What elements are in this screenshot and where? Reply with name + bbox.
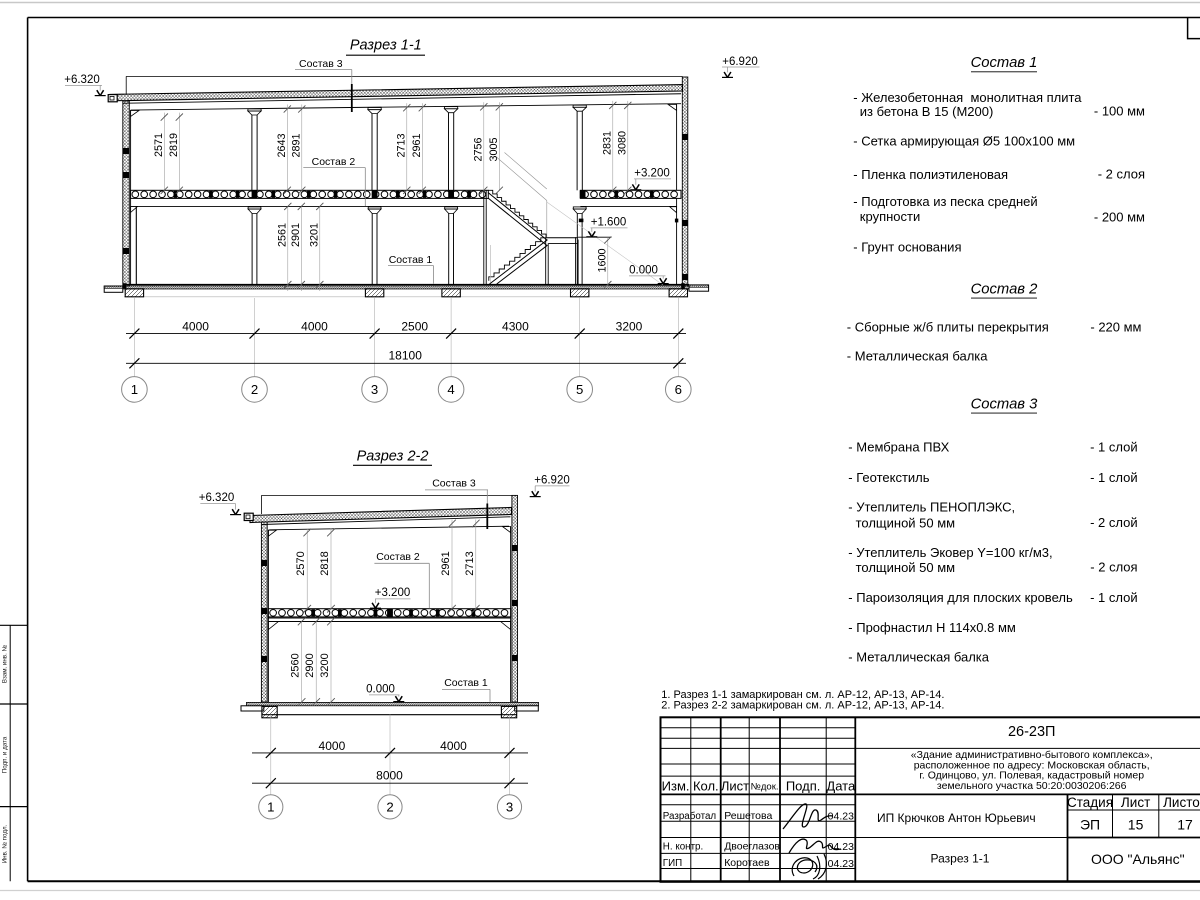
svg-text:Разработал: Разработал bbox=[663, 811, 717, 822]
svg-text:2500: 2500 bbox=[401, 319, 428, 333]
svg-text:04.23: 04.23 bbox=[828, 858, 854, 870]
svg-text:- Железобетонная монолитная п: - Железобетонная монолитная плита bbox=[853, 90, 1082, 105]
svg-text:17: 17 bbox=[1177, 816, 1193, 832]
svg-text:2891: 2891 bbox=[290, 133, 302, 157]
svg-text:2643: 2643 bbox=[276, 133, 288, 157]
svg-text:- Геотекстиль: - Геотекстиль bbox=[848, 470, 929, 485]
svg-text:3200: 3200 bbox=[319, 653, 331, 677]
svg-text:4000: 4000 bbox=[182, 319, 209, 333]
svg-text:26-23П: 26-23П bbox=[1008, 724, 1056, 740]
svg-text:толщиной 50 мм: толщиной 50 мм bbox=[856, 515, 956, 530]
svg-text:- Сборные ж/б плиты перекрытия: - Сборные ж/б плиты перекрытия bbox=[847, 320, 1049, 335]
svg-text:2900: 2900 bbox=[304, 653, 316, 677]
svg-text:1600: 1600 bbox=[596, 248, 608, 272]
svg-text:Решетова: Решетова bbox=[724, 810, 772, 822]
svg-text:Состав 3: Состав 3 bbox=[432, 477, 476, 489]
svg-text:3: 3 bbox=[371, 382, 378, 397]
svg-text:2756: 2756 bbox=[472, 137, 484, 161]
svg-text:3080: 3080 bbox=[616, 131, 628, 155]
svg-text:8000: 8000 bbox=[376, 768, 403, 782]
svg-text:ИП Крючков Антон Юрьевич: ИП Крючков Антон Юрьевич bbox=[877, 811, 1036, 825]
svg-text:- 2 слоя: - 2 слоя bbox=[1090, 560, 1137, 575]
svg-text:3200: 3200 bbox=[616, 319, 643, 333]
svg-text:- Грунт основания: - Грунт основания bbox=[853, 240, 961, 255]
svg-text:- Утеплитель Эковер Y=100 кг/м: - Утеплитель Эковер Y=100 кг/м3, bbox=[848, 545, 1052, 560]
svg-text:Н. контр.: Н. контр. bbox=[663, 841, 703, 852]
svg-text:2571: 2571 bbox=[153, 133, 165, 157]
svg-text:из бетона В 15 (М200): из бетона В 15 (М200) bbox=[860, 104, 994, 119]
svg-text:Состав 3: Состав 3 bbox=[971, 397, 1039, 413]
svg-text:+3.200: +3.200 bbox=[375, 587, 411, 599]
svg-text:ГИП: ГИП bbox=[663, 858, 682, 869]
svg-text:+6.920: +6.920 bbox=[722, 56, 758, 68]
svg-text:- Пароизоляция для плоских кро: - Пароизоляция для плоских кровель bbox=[848, 590, 1073, 605]
svg-text:2. Разрез 2-2 замаркирован см.: 2. Разрез 2-2 замаркирован см. л. АР-12,… bbox=[661, 699, 944, 711]
svg-text:4000: 4000 bbox=[319, 739, 346, 753]
svg-text:- Утеплитель ПЕНОПЛЭКС,: - Утеплитель ПЕНОПЛЭКС, bbox=[848, 500, 1015, 515]
svg-text:4000: 4000 bbox=[440, 739, 467, 753]
svg-text:Листов: Листов bbox=[1163, 795, 1200, 810]
svg-text:2901: 2901 bbox=[290, 223, 302, 247]
svg-text:Подп.: Подп. bbox=[786, 779, 821, 794]
svg-text:2561: 2561 bbox=[276, 223, 288, 247]
svg-text:- Профнастил Н 114х0.8 мм: - Профнастил Н 114х0.8 мм bbox=[848, 620, 1016, 635]
svg-text:4: 4 bbox=[447, 382, 454, 397]
svg-text:2831: 2831 bbox=[601, 131, 613, 155]
svg-text:- 1 слой: - 1 слой bbox=[1090, 470, 1138, 485]
svg-text:+3.200: +3.200 bbox=[634, 168, 670, 180]
svg-text:2818: 2818 bbox=[319, 551, 331, 575]
svg-text:2713: 2713 bbox=[464, 551, 476, 575]
svg-text:2961: 2961 bbox=[440, 551, 452, 575]
svg-text:Лист: Лист bbox=[721, 779, 749, 794]
svg-text:18100: 18100 bbox=[389, 349, 423, 363]
svg-text:- 2 слой: - 2 слой bbox=[1090, 515, 1138, 530]
svg-text:Состав 1: Состав 1 bbox=[444, 677, 488, 689]
svg-text:2: 2 bbox=[386, 800, 393, 815]
svg-text:Стадия: Стадия bbox=[1067, 795, 1113, 810]
svg-text:- Мембрана ПВХ: - Мембрана ПВХ bbox=[848, 440, 949, 455]
svg-text:- Металлическая балка: - Металлическая балка bbox=[847, 349, 988, 364]
svg-text:Кол.: Кол. bbox=[693, 779, 719, 794]
svg-text:3005: 3005 bbox=[488, 137, 500, 161]
svg-text:- Металлическая балка: - Металлическая балка bbox=[848, 650, 989, 665]
svg-text:Дата: Дата bbox=[826, 779, 856, 794]
svg-text:+1.600: +1.600 bbox=[591, 217, 627, 229]
svg-text:Инв. № подл.: Инв. № подл. bbox=[2, 824, 9, 863]
svg-text:0.000: 0.000 bbox=[629, 265, 658, 277]
svg-text:Разрез 2-2: Разрез 2-2 bbox=[357, 449, 429, 465]
svg-text:Состав 2: Состав 2 bbox=[971, 282, 1039, 298]
svg-text:- 100 мм: - 100 мм bbox=[1094, 104, 1145, 119]
svg-text:Разрез 1-1: Разрез 1-1 bbox=[931, 852, 990, 866]
svg-text:+6.920: +6.920 bbox=[534, 475, 570, 487]
svg-text:4000: 4000 bbox=[301, 319, 328, 333]
svg-text:1: 1 bbox=[131, 382, 138, 397]
svg-text:Состав 1: Состав 1 bbox=[971, 55, 1038, 71]
svg-text:Двоеглазов: Двоеглазов bbox=[724, 840, 780, 852]
svg-text:3201: 3201 bbox=[308, 223, 320, 247]
svg-text:Лист: Лист bbox=[1121, 795, 1150, 810]
svg-text:- 220 мм: - 220 мм bbox=[1090, 320, 1141, 335]
svg-text:2560: 2560 bbox=[290, 653, 302, 677]
svg-text:Изм.: Изм. bbox=[662, 779, 690, 794]
svg-text:3: 3 bbox=[506, 800, 513, 815]
svg-text:Разрез 1-1: Разрез 1-1 bbox=[350, 38, 422, 54]
svg-text:2961: 2961 bbox=[411, 133, 423, 157]
svg-text:Коротаев: Коротаев bbox=[724, 857, 770, 869]
svg-text:Состав 2: Состав 2 bbox=[312, 156, 356, 168]
svg-text:4300: 4300 bbox=[502, 319, 529, 333]
svg-text:- 2 слоя: - 2 слоя bbox=[1098, 167, 1145, 182]
svg-text:2570: 2570 bbox=[295, 551, 307, 575]
svg-text:Подп. и дата: Подп. и дата bbox=[2, 736, 9, 773]
svg-text:крупности: крупности bbox=[860, 209, 920, 224]
svg-text:- 200 мм: - 200 мм bbox=[1094, 210, 1145, 225]
svg-text:Состав 3: Состав 3 bbox=[299, 58, 343, 70]
svg-text:Состав 1: Состав 1 bbox=[389, 254, 433, 266]
svg-text:Взам. инв. №: Взам. инв. № bbox=[2, 644, 9, 683]
svg-text:15: 15 bbox=[1128, 816, 1144, 832]
svg-text:+6.320: +6.320 bbox=[199, 492, 235, 504]
svg-text:- Сетка армирующая Ø5 100х100: - Сетка армирующая Ø5 100х100 мм bbox=[853, 134, 1075, 149]
svg-text:земельного участка 50:20:00302: земельного участка 50:20:0030206:266 bbox=[937, 780, 1127, 792]
svg-text:ООО "Альянс": ООО "Альянс" bbox=[1091, 851, 1185, 867]
svg-text:толщиной 50 мм: толщиной 50 мм bbox=[856, 560, 956, 575]
svg-text:6: 6 bbox=[675, 382, 682, 397]
svg-text:- 1 слой: - 1 слой bbox=[1090, 590, 1138, 605]
svg-text:2819: 2819 bbox=[168, 133, 180, 157]
svg-text:5: 5 bbox=[576, 382, 583, 397]
svg-text:- Подготовка из песка средней: - Подготовка из песка средней bbox=[853, 194, 1037, 209]
svg-text:1: 1 bbox=[267, 800, 274, 815]
svg-text:Состав 2: Состав 2 bbox=[376, 551, 420, 563]
svg-text:- 1 слой: - 1 слой bbox=[1090, 440, 1138, 455]
svg-text:ЭП: ЭП bbox=[1080, 816, 1100, 832]
svg-text:2: 2 bbox=[251, 382, 258, 397]
svg-text:№док.: №док. bbox=[751, 782, 779, 793]
svg-text:0.000: 0.000 bbox=[366, 684, 395, 696]
svg-text:- Пленка полиэтиленовая: - Пленка полиэтиленовая bbox=[853, 167, 1008, 182]
svg-text:2713: 2713 bbox=[395, 133, 407, 157]
svg-text:+6.320: +6.320 bbox=[64, 74, 100, 86]
